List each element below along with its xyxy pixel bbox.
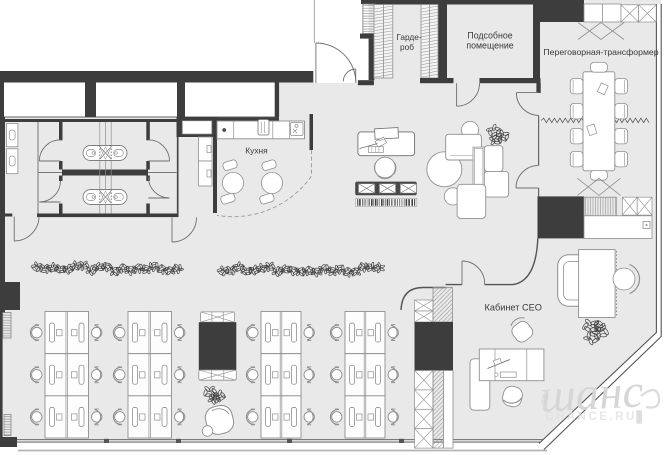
svg-text:Кухня: Кухня	[245, 146, 267, 156]
svg-text:помещение: помещение	[466, 41, 513, 51]
svg-text:Подсобное: Подсобное	[467, 30, 512, 40]
svg-text:роб: роб	[400, 42, 414, 52]
svg-text:CHANCE.RU: CHANCE.RU	[545, 411, 637, 423]
svg-text:Переговорная-трансформер: Переговорная-трансформер	[543, 47, 658, 57]
svg-text:Гарде-: Гарде-	[396, 32, 422, 42]
svg-text:Кабинет CEO: Кабинет CEO	[484, 303, 541, 313]
